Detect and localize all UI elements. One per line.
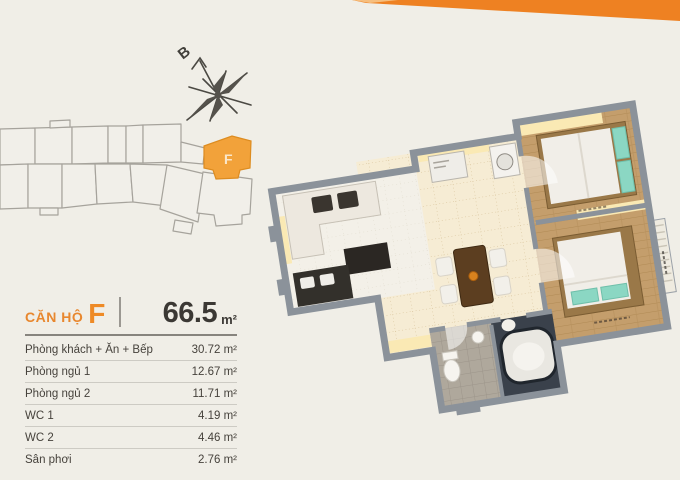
building-keyplan: F <box>0 112 262 244</box>
corner-ribbon <box>0 0 680 26</box>
room-area: 2.76 m² <box>198 454 237 466</box>
table-row: Phòng ngủ 2 11.71 m² <box>25 383 237 405</box>
room-label: Phòng ngủ 1 <box>25 366 90 378</box>
table-row: WC 2 4.46 m² <box>25 427 237 449</box>
brochure-page: B F <box>0 0 680 480</box>
room-label: WC 2 <box>25 432 54 444</box>
unit-title-prefix: CĂN HỘ <box>25 310 83 328</box>
keyplan-units <box>0 120 252 234</box>
unit-title-letter: F <box>88 300 105 328</box>
room-label: Phòng ngủ 2 <box>25 388 90 400</box>
room-area: 30.72 m² <box>192 344 237 356</box>
unit-info-header: CĂN HỘ F 66.5 m² <box>25 292 237 328</box>
microwave-shelf <box>428 151 468 182</box>
keyplan-unit-f-label: F <box>224 151 233 167</box>
stove <box>319 273 335 286</box>
ribbon-band <box>352 0 680 21</box>
kitchen-sink <box>300 276 316 289</box>
area-table: Phòng khách + Ăn + Bếp 30.72 m² Phòng ng… <box>25 339 237 470</box>
unit-info-card: CĂN HỘ F 66.5 m² Phòng khách + Ăn + Bếp … <box>25 292 237 470</box>
total-area: 66.5 m² <box>121 299 237 328</box>
room-label: Sân phơi <box>25 454 72 466</box>
header-rule <box>25 334 237 336</box>
total-area-unit: m² <box>221 312 237 327</box>
table-row: WC 1 4.19 m² <box>25 405 237 427</box>
table-row: Sân phơi 2.76 m² <box>25 449 237 470</box>
floorplan-3d <box>253 98 680 450</box>
table-row: Phòng khách + Ăn + Bếp 30.72 m² <box>25 339 237 361</box>
compass-north-label: B <box>175 43 194 63</box>
table-row: Phòng ngủ 1 12.67 m² <box>25 361 237 383</box>
room-area: 4.46 m² <box>198 432 237 444</box>
room-area: 4.19 m² <box>198 410 237 422</box>
sofa-cushion <box>337 190 359 209</box>
sofa-cushion <box>311 194 333 213</box>
room-label: Phòng khách + Ăn + Bếp <box>25 344 153 356</box>
room-label: WC 1 <box>25 410 54 422</box>
bed-bedroom1 <box>536 121 636 208</box>
total-area-value: 66.5 <box>163 299 217 328</box>
room-area: 12.67 m² <box>192 366 237 378</box>
room-area: 11.71 m² <box>192 388 237 400</box>
